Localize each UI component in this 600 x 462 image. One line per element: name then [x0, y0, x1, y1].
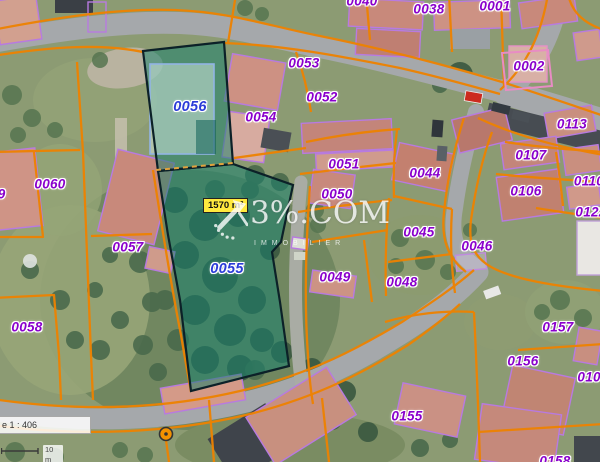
parcel-0056-dark-roof [196, 120, 216, 154]
cadastral-map-viewport[interactable]: 0040 0038 0001 0053 0002 0052 0056 0054 … [0, 0, 600, 462]
poi-marker [160, 428, 173, 441]
scale-bar-line [1, 445, 41, 457]
map-scale-text: e 1 : 406 [0, 416, 91, 434]
aerial-map-canvas [0, 0, 600, 462]
selected-parcel-area-label: 1570 m² [203, 198, 248, 213]
map-scale-bar: 10 m [1, 445, 63, 457]
scale-bar-label: 10 m [43, 445, 63, 462]
